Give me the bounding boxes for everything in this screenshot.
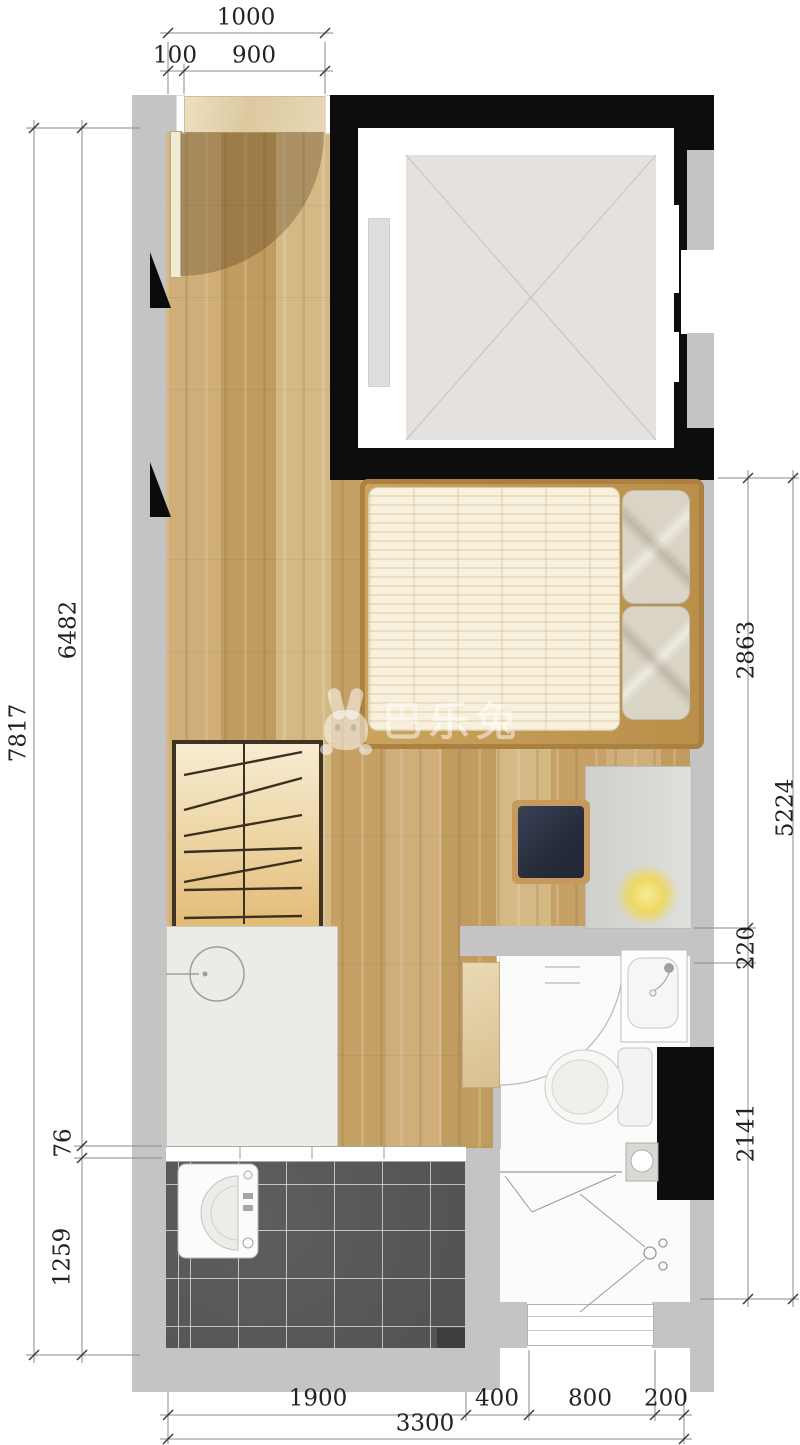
dim-bottom-b: 400 bbox=[475, 1388, 519, 1411]
watermark: 巴乐兔 bbox=[318, 688, 538, 758]
elevator-door-slot-upper bbox=[671, 205, 679, 293]
dim-left-a: 6482 bbox=[58, 601, 81, 660]
dim-left-b: 76 bbox=[53, 1128, 76, 1157]
bathroom-door-leaf bbox=[462, 962, 500, 1088]
corridor-wood-floor bbox=[166, 130, 330, 482]
left-wall bbox=[132, 95, 166, 1390]
elevator-counterweight bbox=[368, 218, 390, 387]
bathroom-window bbox=[527, 1304, 654, 1346]
window-wall-left-pier bbox=[497, 1302, 527, 1348]
elevator-exterior-pier-lower bbox=[687, 333, 714, 428]
plumbing-duct bbox=[657, 1047, 714, 1200]
window-wall-right-pier bbox=[652, 1302, 714, 1348]
elevator-door-opening bbox=[681, 250, 714, 334]
rabbit-logo-icon bbox=[318, 688, 376, 756]
elevator-wall-top bbox=[330, 95, 714, 128]
elevator-car-square bbox=[406, 155, 656, 440]
dim-left-total: 7817 bbox=[8, 704, 31, 763]
dim-right-total: 5224 bbox=[775, 779, 798, 838]
dim-top-total: 1000 bbox=[217, 7, 276, 30]
pillow-bottom bbox=[622, 606, 690, 720]
floor-plan-canvas: 1000 100 900 7817 6482 76 1259 2863 220 … bbox=[0, 0, 800, 1445]
dim-top-b: 900 bbox=[232, 45, 276, 68]
bathroom-top-wall bbox=[460, 926, 690, 956]
dim-bottom-total: 3300 bbox=[396, 1413, 455, 1436]
bathroom-left-wall-strip bbox=[493, 1085, 501, 1149]
right-wall-lower bbox=[690, 1200, 714, 1392]
dim-bottom-c: 800 bbox=[568, 1388, 612, 1411]
elevator-wall-left bbox=[330, 95, 358, 480]
balcony-tile-floor bbox=[166, 1160, 466, 1350]
sliding-door bbox=[166, 1146, 466, 1162]
dim-top-a: 100 bbox=[153, 45, 197, 68]
chair-cushion bbox=[518, 806, 584, 878]
dim-left-c: 1259 bbox=[52, 1228, 75, 1287]
watermark-text: 巴乐兔 bbox=[382, 702, 523, 742]
elevator-wall-bottom bbox=[330, 448, 714, 480]
dim-bottom-a: 1900 bbox=[289, 1388, 348, 1411]
dim-bottom-d: 200 bbox=[644, 1388, 688, 1411]
wardrobe bbox=[172, 740, 323, 936]
desk-lamp-glow bbox=[614, 866, 680, 924]
kitchen-counter bbox=[166, 926, 338, 1150]
elevator-exterior-pier-upper bbox=[687, 150, 714, 250]
dim-right-b: 220 bbox=[736, 926, 759, 970]
pillow-top bbox=[622, 490, 690, 604]
entry-door-leaf bbox=[170, 131, 182, 278]
elevator-door-slot-lower bbox=[671, 332, 679, 382]
entry-threshold bbox=[184, 96, 327, 133]
dim-right-a: 2863 bbox=[736, 621, 759, 680]
top-left-wall-corner bbox=[132, 95, 176, 132]
dim-right-c: 2141 bbox=[736, 1104, 759, 1163]
balcony-bathroom-divider-wall bbox=[465, 1148, 500, 1390]
